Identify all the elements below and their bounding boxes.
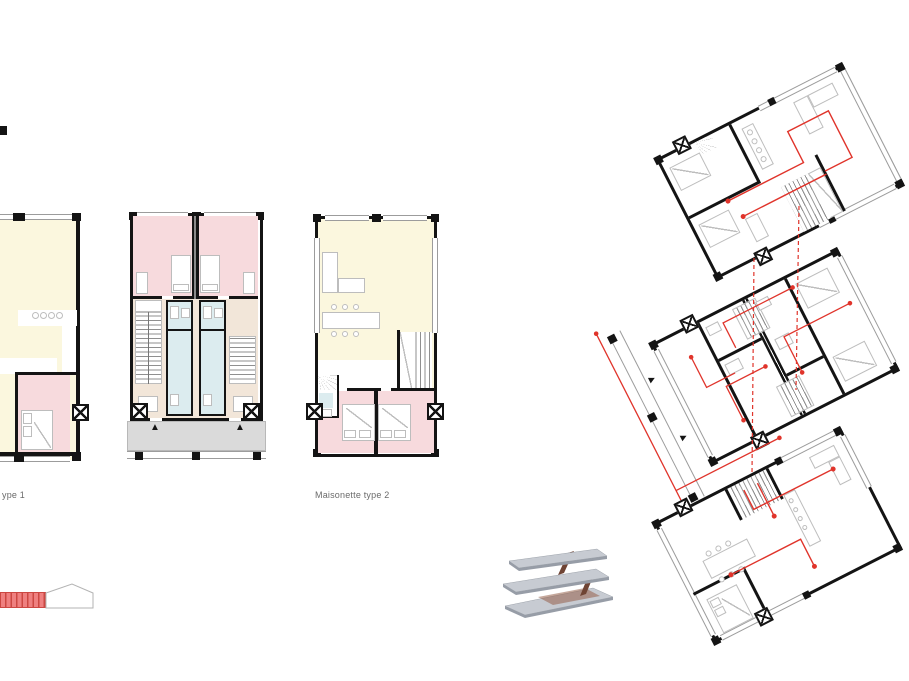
- stair-link-dashed: [752, 258, 754, 474]
- architectural-drawing-canvas: ▲ ▲: [0, 0, 909, 681]
- stair-link-dashed: [796, 206, 799, 390]
- stair-link-overlay: [0, 0, 909, 681]
